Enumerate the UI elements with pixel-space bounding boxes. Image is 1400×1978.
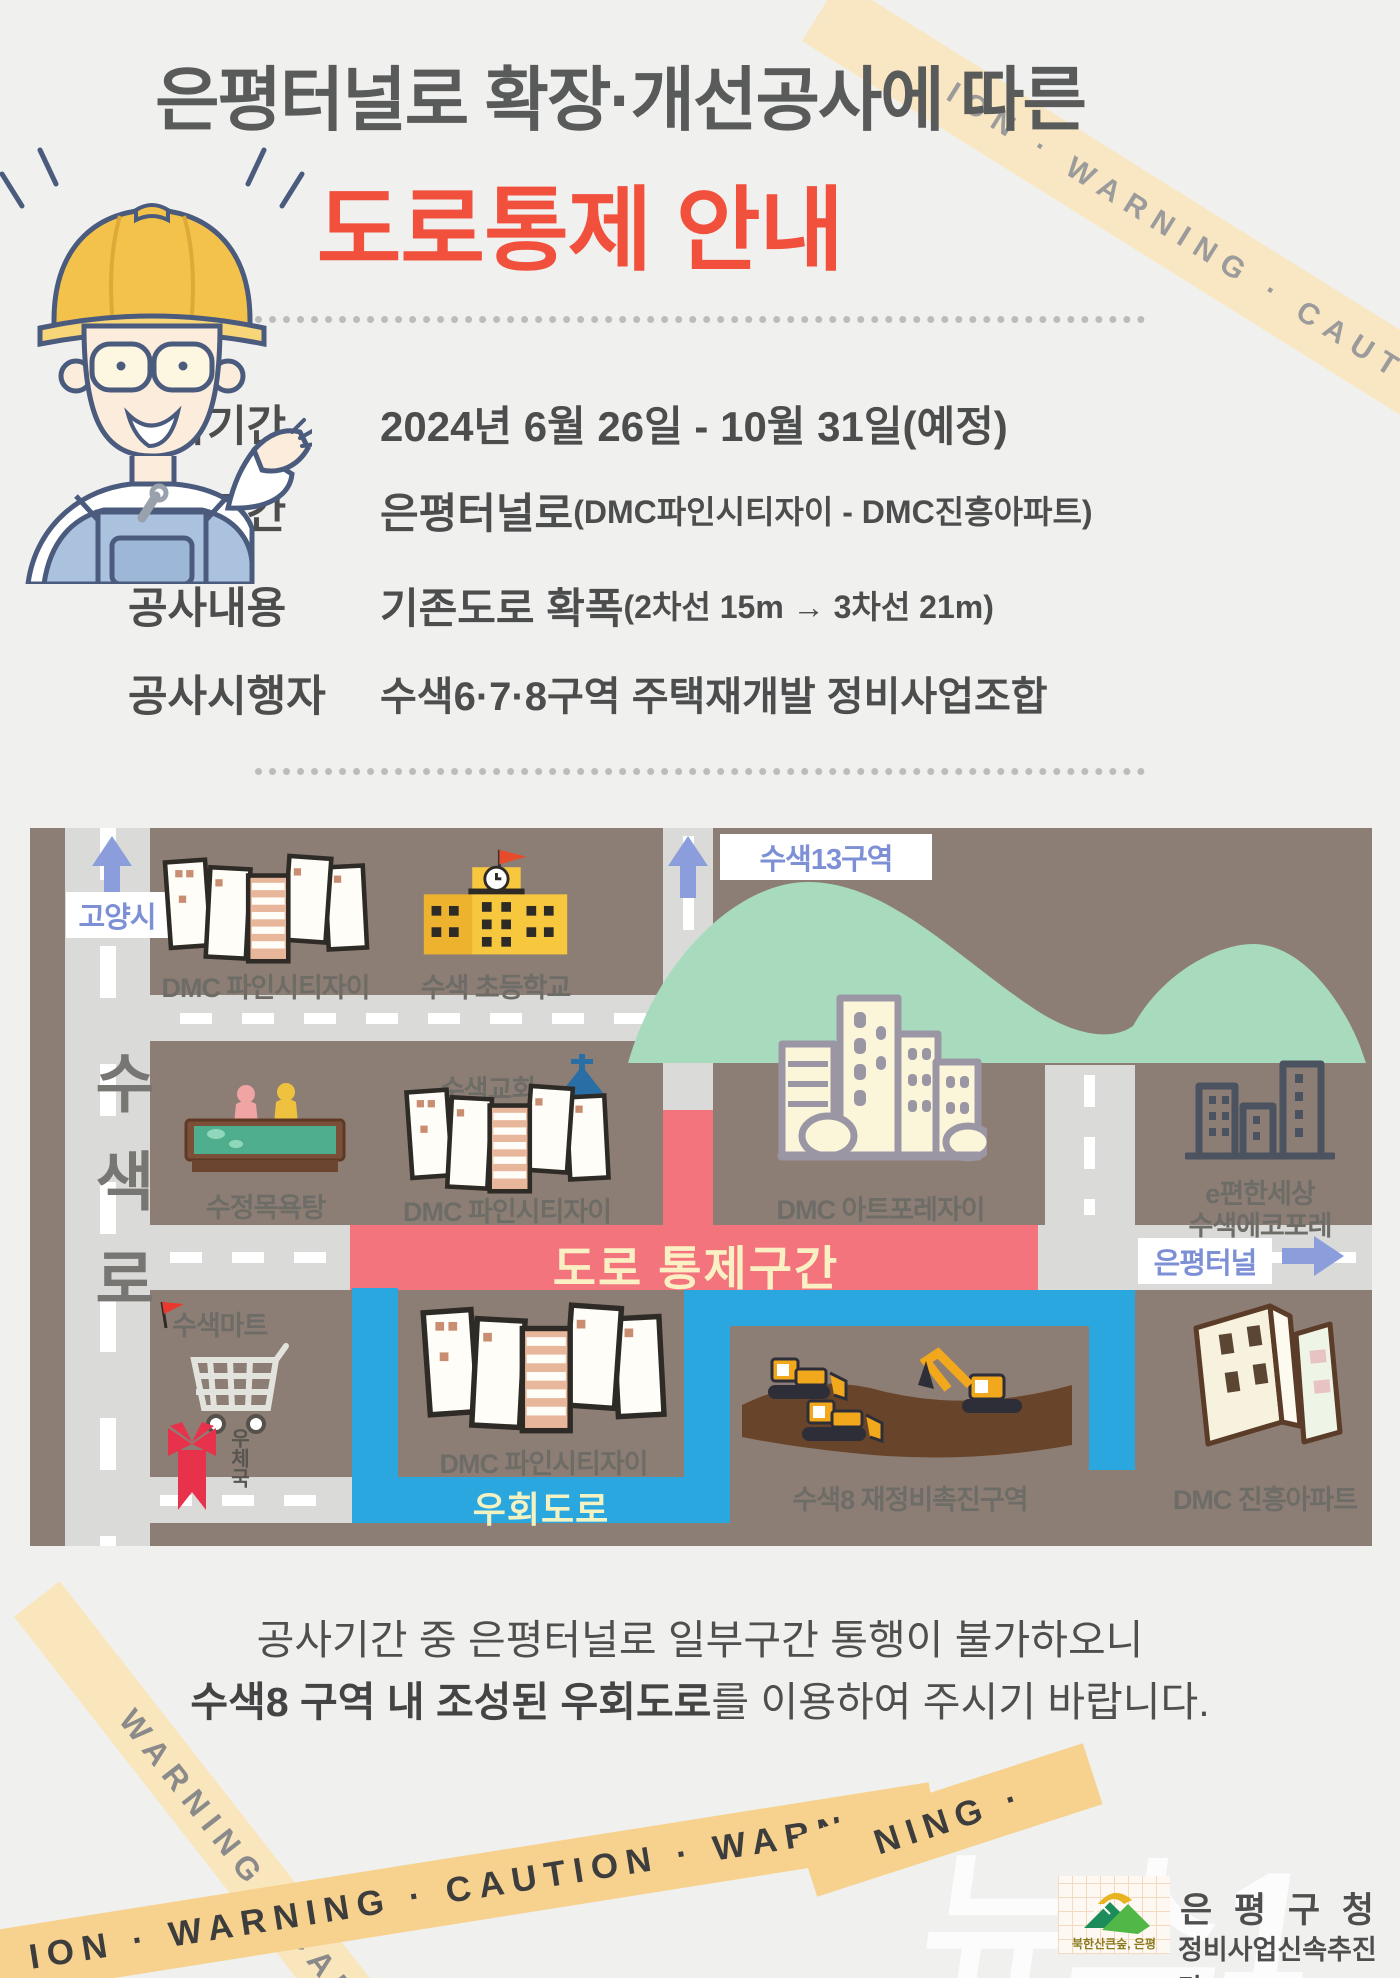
jinheung-building-icon: [1178, 1294, 1353, 1459]
footer-notice-rest: 를 이용하여 주시기 바랍니다.: [711, 1679, 1209, 1725]
epyeon-label-2: 수색에코포레: [1160, 1204, 1360, 1243]
apartment-cluster-icon: [418, 1296, 668, 1436]
detour-right-vertical: [1089, 1290, 1135, 1470]
poster: ION · WARNING · CAUTION · 은평터널로 확장·개선공사에…: [0, 0, 1400, 1978]
school-label: 수색 초등학교: [388, 966, 603, 1005]
apartment-cluster-icon: [158, 850, 373, 964]
apartment-label: DMC 파인시티자이: [382, 1190, 632, 1229]
school-icon: [418, 846, 573, 964]
post-office-icon: [168, 1422, 216, 1510]
tunnel-label: 은평터널: [1138, 1238, 1272, 1284]
goyang-up-arrow-icon: [92, 836, 132, 898]
artfore-building-icon: [772, 986, 987, 1186]
control-section-label: 도로 통제구간: [350, 1230, 1042, 1299]
dotted-divider-top: [255, 316, 1145, 323]
susaek8-label: 수색8 재정비촉진구역: [730, 1478, 1090, 1517]
jinheung-label: DMC 진흥아파트: [1145, 1478, 1385, 1517]
emblem-caption: 북한산큰숲, 은평: [1058, 1935, 1170, 1952]
road-centerline: [170, 1252, 345, 1263]
road-centerline: [1084, 1075, 1095, 1215]
apartment-label: DMC 파인시티자이: [416, 1442, 671, 1481]
org-name: 은 평 구 청: [1180, 1882, 1380, 1933]
page-title-line1: 은평터널로 확장·개선공사에 따른: [0, 44, 1240, 145]
bathhouse-icon: [178, 1076, 353, 1181]
footer-notice-line1: 공사기간 중 은평터널로 일부구간 통행이 불가하오니: [0, 1606, 1400, 1666]
caution-tape-main: ION · WARNING · CAUTION · WARN: [0, 1782, 939, 1978]
epyeon-building-icon: [1185, 1058, 1335, 1166]
road-closed-vertical: [663, 1110, 713, 1230]
hills-illustration: [618, 868, 1368, 1063]
apartment-label: DMC 파인시티자이: [148, 966, 383, 1005]
info-value: 2024년 6월 26일 - 10월 31일(예정): [380, 403, 1008, 450]
construction-site-icon: [742, 1333, 1072, 1473]
info-value: 수색6·7·8구역 주택재개발 정비사업조합: [380, 675, 1048, 719]
post-office-label: 우체국: [224, 1428, 253, 1488]
eunpyeong-emblem: 북한산큰숲, 은평: [1058, 1876, 1170, 1954]
info-label: 공사시행자: [128, 662, 348, 724]
page-title-line2: 도로통제 안내: [0, 156, 1160, 289]
info-value: 기존도로 확폭: [380, 585, 624, 632]
goyang-label: 고양시: [66, 892, 168, 938]
dotted-divider-mid: [255, 768, 1145, 775]
bathhouse-label: 수정목욕탕: [168, 1186, 363, 1225]
info-row: 공사시행자수색6·7·8구역 주택재개발 정비사업조합: [128, 662, 1228, 724]
artfore-label: DMC 아트포레자이: [768, 1188, 993, 1227]
footer-notice-line2: 수색8 구역 내 조성된 우회도로를 이용하여 주시기 바랍니다.: [0, 1668, 1400, 1728]
apartment-cluster-icon: [392, 1080, 622, 1194]
emblem-mountain-icon: [1058, 1878, 1170, 1938]
construction-area-map: 우회도로 고양시 수색13구역 은평터널 수색로 도로 통제구간: [30, 828, 1372, 1546]
detour-label: 우회도로: [352, 1481, 730, 1533]
footer-notice-bold: 수색8 구역 내 조성된 우회도로: [190, 1679, 711, 1725]
susaekro-label: 수색로: [74, 1050, 166, 1344]
info-value: 은평터널로: [380, 490, 573, 537]
org-dept: 정비사업신속추진단: [1178, 1928, 1400, 1978]
